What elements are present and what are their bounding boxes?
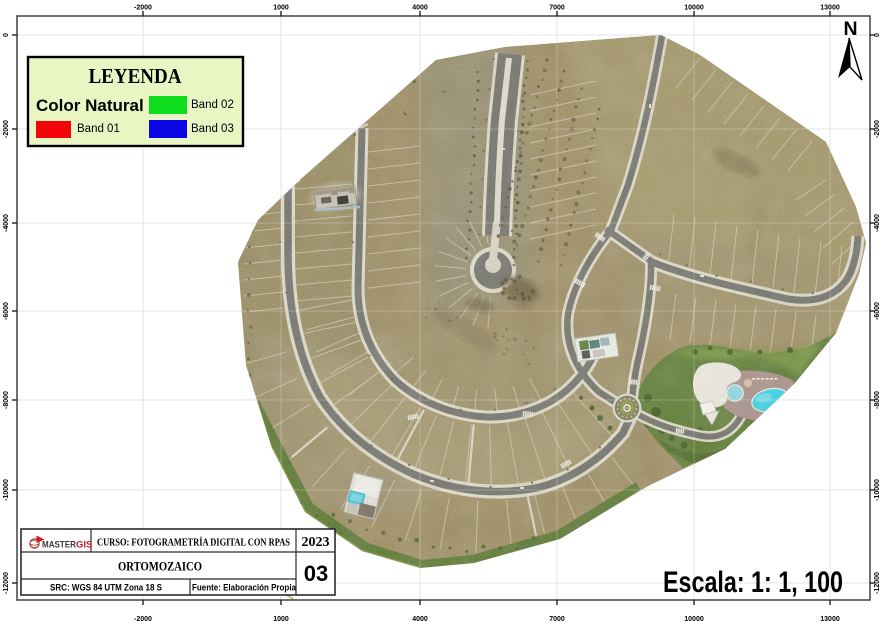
svg-text:0: 0 [874, 33, 881, 37]
svg-text:1000: 1000 [273, 5, 289, 12]
svg-text:N: N [843, 18, 857, 40]
svg-text:13000: 13000 [820, 616, 840, 623]
svg-text:-6000: -6000 [874, 302, 881, 320]
svg-text:Color Natural: Color Natural [36, 96, 144, 115]
svg-text:-8000: -8000 [874, 391, 881, 409]
svg-text:10000: 10000 [684, 616, 704, 623]
svg-text:4000: 4000 [412, 616, 428, 623]
svg-text:Escala: 1: 1, 100: Escala: 1: 1, 100 [663, 566, 843, 599]
svg-text:-12000: -12000 [3, 572, 10, 594]
svg-text:-6000: -6000 [3, 302, 10, 320]
svg-text:-12000: -12000 [874, 572, 881, 594]
svg-text:ORTOMOZAICO: ORTOMOZAICO [118, 559, 202, 574]
svg-text:-2000: -2000 [134, 616, 152, 623]
svg-text:CURSO: FOTOGRAMETRÍA DIGITAL C: CURSO: FOTOGRAMETRÍA DIGITAL CON RPAS [97, 537, 290, 549]
svg-text:13000: 13000 [820, 5, 840, 12]
svg-text:Fuente: Elaboración Propia: Fuente: Elaboración Propia [192, 583, 297, 594]
svg-text:0: 0 [3, 33, 10, 37]
svg-text:1000: 1000 [273, 616, 289, 623]
svg-text:SRC: WGS 84 UTM Zona 18 S: SRC: WGS 84 UTM Zona 18 S [50, 583, 162, 594]
svg-text:Band 02: Band 02 [191, 99, 234, 111]
svg-text:7000: 7000 [549, 5, 565, 12]
svg-text:-2000: -2000 [3, 120, 10, 138]
svg-text:03: 03 [304, 561, 328, 586]
svg-text:MASTER: MASTER [42, 540, 76, 551]
svg-text:-2000: -2000 [874, 120, 881, 138]
svg-text:LEYENDA: LEYENDA [89, 64, 183, 88]
svg-text:-4000: -4000 [874, 214, 881, 232]
svg-text:GIS: GIS [76, 540, 92, 551]
svg-text:2023: 2023 [302, 535, 330, 550]
svg-text:-10000: -10000 [3, 479, 10, 501]
svg-text:-10000: -10000 [874, 479, 881, 501]
svg-text:4000: 4000 [412, 5, 428, 12]
svg-text:-2000: -2000 [134, 5, 152, 12]
svg-text:-4000: -4000 [3, 214, 10, 232]
svg-text:Band 01: Band 01 [77, 123, 120, 135]
svg-text:Band 03: Band 03 [191, 123, 234, 135]
svg-text:-8000: -8000 [3, 391, 10, 409]
svg-text:7000: 7000 [549, 616, 565, 623]
svg-text:10000: 10000 [684, 5, 704, 12]
